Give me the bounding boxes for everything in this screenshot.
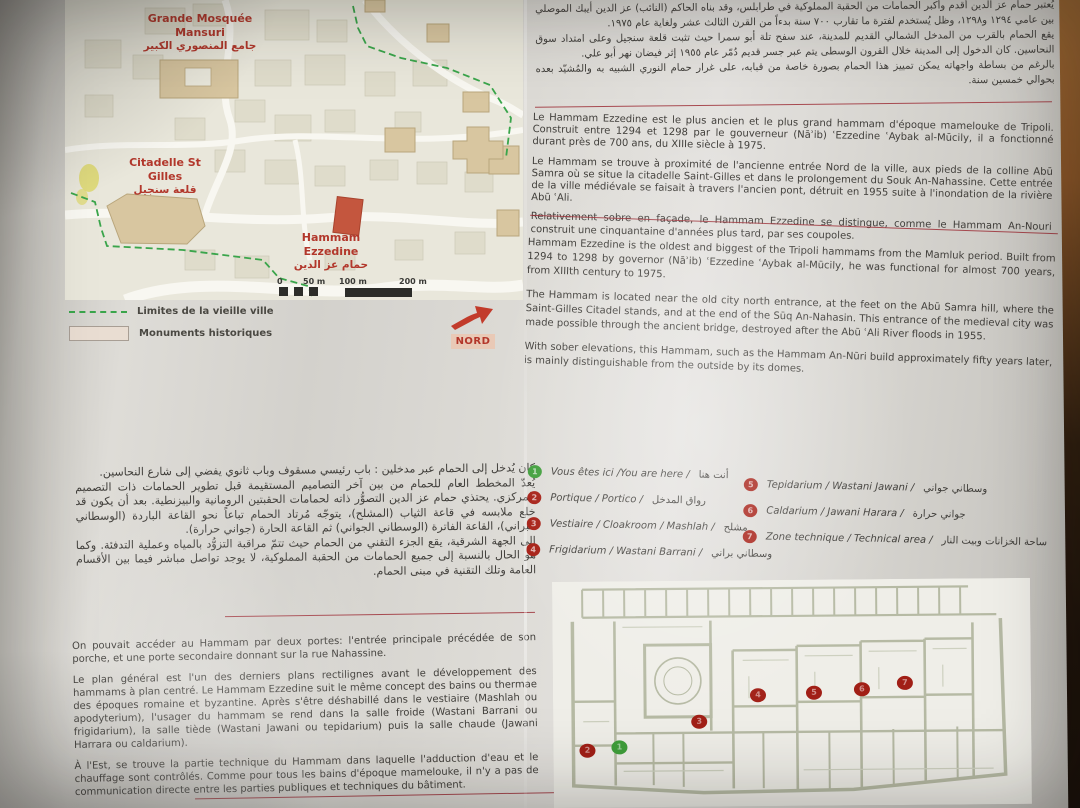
room-marker: 6 [743,503,757,516]
scale-tick-200: 200 m [399,277,427,286]
intro-english-p2: The Hammam is located near the old city … [525,288,1054,347]
intro-french-paragraphs: Le Hammam Ezzedine est le plus ancien et… [530,112,1054,254]
plan-marker-tepidarium: 5 [806,686,822,700]
room-label: Caldarium / Jawani Harara / [766,505,904,519]
room-marker: 7 [743,529,757,542]
legend-historic-monuments: Monuments historiques [69,326,272,341]
room-marker: 5 [744,477,758,490]
plan-marker-frigidarium: 4 [750,688,766,702]
section-divider [535,101,1052,107]
room-marker: 2 [527,490,541,503]
map-label-citadel: Citadelle St Gilles قلعة سنجيل [110,156,220,197]
scale-tick-100: 100 m [339,277,367,286]
room-legend-item-6: 6 Caldarium / Jawani Harara / جواني حرار… [743,503,1048,523]
information-panel-photo: Grande Mosquée Mansuri جامع المنصوري الك… [0,0,1080,808]
room-marker: 4 [526,542,540,555]
room-label-arabic: ساحة الخزانات وبيت النار [941,535,1047,548]
north-label: NORD [451,334,495,349]
intro-french-p2: Le Hammam se trouve à proximité de l'anc… [531,156,1053,216]
intro-english-paragraphs: Hammam Ezzedine is the oldest and bigges… [524,236,1056,395]
monuments-color-swatch [69,326,129,341]
map-label-citadel-ar: قلعة سنجيل [110,184,220,197]
intro-arabic-paragraph: يُعتبر حمام عز الدين أقدم وأكبر الحمامات… [535,0,1055,92]
room-label: Vestiaire / Cloakroom / Mashlah / [550,518,715,532]
room-label: Tepidarium / Wastani Jawani / [767,479,915,493]
plan-marker-portico: 2 [579,744,595,758]
wooden-wall-background [1054,0,1080,808]
section-divider [225,612,535,617]
you-are-here-marker: 1 [528,464,542,477]
legend-old-city-limits: Limites de la vieille ville [69,306,274,317]
room-legend-item-1: 1 Vous êtes ici /You are here / أنت هنا [528,464,774,483]
map-label-hammam-fr: Hammam Ezzedine [275,231,387,259]
description-french-paragraphs: On pouvait accéder au Hammam par deux po… [72,631,539,807]
scale-tick-0: 0 [277,277,283,286]
map-label-mosque: Grande Mosquée Mansuri جامع المنصوري الك… [125,12,275,53]
description-french-p3: À l'Est, se trouve la partie technique d… [74,751,539,799]
map-label-mosque-ar: جامع المنصوري الكبير [125,40,275,53]
legend-old-city-label: Limites de la vieille ville [137,306,274,317]
map-label-citadel-fr: Citadelle St Gilles [110,156,220,184]
room-label: Portique / Portico / [550,492,643,505]
room-legend-item-3: 3 Vestiaire / Cloakroom / Mashlah / مشلح [527,516,773,535]
map-label-hammam: Hammam Ezzedine حمام عز الدين [275,231,387,272]
plan-marker-technical-area: 7 [897,676,913,690]
room-label: Frigidarium / Wastani Barrani / [549,544,702,558]
green-dashed-line-swatch [69,311,127,313]
intro-english-p3: With sober elevations, this Hammam, such… [524,340,1053,385]
description-arabic-paragraph: كان يُدخل إلى الحمام عبر مدخلين : باب رئ… [75,461,536,582]
room-label-arabic: رواق المدخل [652,494,706,506]
rooms-legend-column-2: 5 Tepidarium / Wastani Jawani / وسطاني ج… [742,477,1048,561]
map-label-hammam-ar: حمام عز الدين [275,259,387,272]
map-label-mosque-fr: Grande Mosquée Mansuri [125,12,275,40]
description-french-p2: Le plan général est l'un des derniers pl… [73,665,538,752]
rooms-legend-column-1: 1 Vous êtes ici /You are here / أنت هنا … [526,464,774,573]
floor-plan: 2 1 3 4 5 6 7 [552,578,1032,808]
room-label: Zone technique / Technical area / [766,531,933,545]
room-legend-item-2: 2 Portique / Portico / رواق المدخل [527,490,773,509]
plan-marker-caldarium: 6 [854,682,870,696]
city-map: Grande Mosquée Mansuri جامع المنصوري الك… [65,0,523,362]
room-legend-item-5: 5 Tepidarium / Wastani Jawani / وسطاني ج… [744,477,1049,497]
floor-plan-drawing [552,578,1032,808]
intro-french-p1: Le Hammam Ezzedine est le plus ancien et… [532,112,1054,159]
legend-monuments-label: Monuments historiques [139,328,272,339]
room-label: Vous êtes ici /You are here / [551,466,690,480]
plan-marker-you-are-here: 1 [611,740,627,754]
scale-tick-50: 50 m [303,277,325,286]
plan-marker-cloakroom: 3 [691,715,707,729]
room-label-arabic: أنت هنا [699,469,729,481]
room-label-arabic: جواني حرارة [913,508,966,520]
north-arrow-icon [449,300,497,330]
room-label-arabic: وسطاني جواني [923,482,987,494]
room-legend-item-7: 7 Zone technique / Technical area / ساحة… [743,529,1048,549]
room-legend-item-4: 4 Frigidarium / Wastani Barrani / وسطاني… [526,542,772,561]
room-marker: 3 [527,516,541,529]
description-french-p1: On pouvait accéder au Hammam par deux po… [72,631,536,666]
